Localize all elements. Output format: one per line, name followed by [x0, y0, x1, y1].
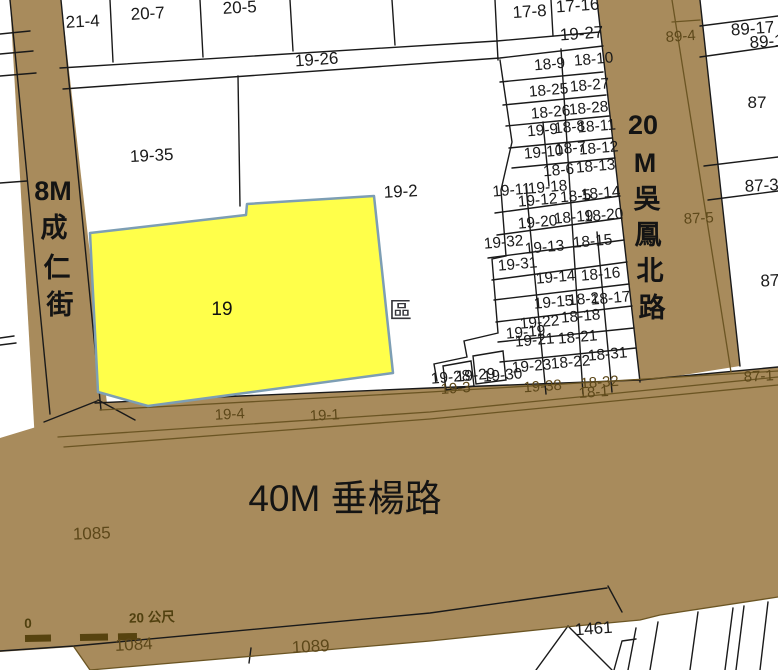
map-label-鳳: 鳳: [635, 220, 662, 250]
map-label-18-31: 18-31: [587, 344, 628, 364]
map-label-19-38: 19-38: [523, 377, 562, 397]
map-label-8M: 8M: [34, 176, 72, 206]
map-label-18-14: 18-14: [580, 183, 621, 203]
map-label-路: 路: [639, 292, 667, 323]
map-label-19-2: 19-2: [383, 181, 418, 202]
map-label-19-30: 19-30: [482, 365, 523, 385]
map-label-18-25: 18-25: [528, 80, 569, 100]
map-canvas[interactable]: 東區 21-420-720-519-2617-817-1619-2789-178…: [0, 0, 778, 670]
map-label-1084: 1084: [114, 634, 153, 655]
map-label-1085: 1085: [73, 523, 111, 543]
map-label-18-15: 18-15: [572, 231, 613, 251]
map-label-仁: 仁: [44, 253, 71, 283]
map-label-87-: 87-: [760, 270, 778, 290]
map-label-89-4: 89-4: [665, 27, 696, 46]
map-label-吳: 吳: [634, 184, 662, 214]
map-label-17-16: 17-16: [555, 0, 600, 17]
map-label-20-公尺: 20 公尺: [129, 609, 176, 626]
map-label-18-18: 18-18: [560, 306, 601, 326]
map-label-18-1: 18-1: [578, 383, 609, 402]
map-label-18-21: 18-21: [557, 327, 598, 347]
map-label-街: 街: [46, 290, 74, 320]
map-label-87-1: 87-1: [743, 367, 774, 386]
map-label-18-11: 18-11: [577, 116, 617, 136]
map-label-18-10: 18-10: [573, 49, 614, 69]
map-label-18-9: 18-9: [533, 55, 565, 75]
map-label-19-31: 19-31: [497, 254, 538, 274]
map-label-19-26: 19-26: [294, 49, 339, 71]
map-label-1089: 1089: [291, 636, 330, 657]
map-label-19-21: 19-21: [514, 330, 555, 350]
map-label-18-16: 18-16: [580, 264, 621, 284]
map-label-87-3: 87-3: [744, 175, 778, 196]
map-label-北: 北: [637, 256, 664, 286]
cadastral-map: 東區 21-420-720-519-2617-817-1619-2789-178…: [0, 0, 778, 670]
map-label-M: M: [634, 148, 657, 178]
map-label-18-22: 18-22: [550, 352, 591, 372]
map-label-19-3: 19-3: [440, 379, 471, 398]
map-label-19-4: 19-4: [214, 405, 245, 424]
map-label-19-14: 19-14: [535, 267, 576, 287]
map-label-89-1: 89-1: [749, 31, 778, 52]
map-label-20-7: 20-7: [130, 3, 165, 24]
map-label-18-28: 18-28: [568, 98, 609, 118]
parcel-highlight-19[interactable]: [90, 196, 393, 406]
map-label-17-8: 17-8: [512, 1, 547, 22]
map-label-0: 0: [24, 616, 32, 631]
map-label-18-27: 18-27: [569, 75, 610, 95]
map-label-20: 20: [628, 110, 658, 140]
map-label-19-1: 19-1: [309, 406, 340, 425]
map-label-87-5: 87-5: [683, 209, 714, 228]
map-label-19-27: 19-27: [559, 23, 604, 45]
map-label-19-32: 19-32: [483, 232, 524, 252]
map-label-19: 19: [211, 299, 232, 320]
map-label-成: 成: [41, 213, 68, 243]
map-label-21-4: 21-4: [65, 11, 100, 32]
map-label-19-35: 19-35: [130, 145, 174, 166]
map-label-18-13: 18-13: [575, 156, 616, 176]
map-label-40M-垂楊路: 40M 垂楊路: [248, 478, 441, 519]
map-label-19-12: 19-12: [517, 190, 558, 210]
map-label-19-20: 19-20: [517, 212, 558, 232]
map-label-20-5: 20-5: [222, 0, 257, 18]
map-label-18-20: 18-20: [583, 205, 624, 225]
map-label-1461: 1461: [574, 618, 613, 640]
map-label-87: 87: [748, 93, 767, 112]
